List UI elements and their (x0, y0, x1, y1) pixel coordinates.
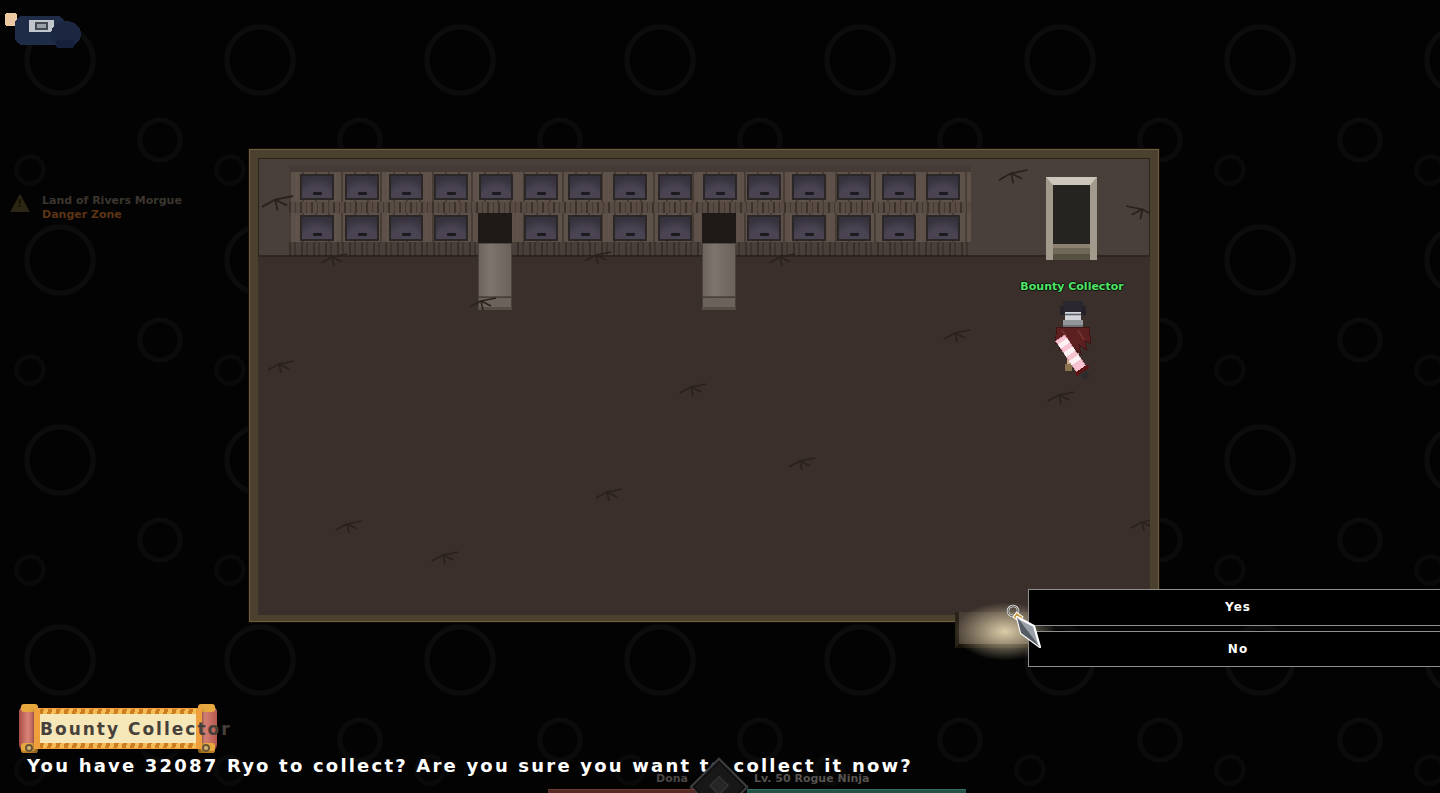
morgue-drawer (658, 215, 692, 241)
morgue-drawers-bottom-row (289, 213, 971, 242)
morgue-wall-lintel (289, 165, 971, 172)
choice-option-no[interactable]: No (1028, 631, 1440, 667)
morgue-drawer (613, 215, 647, 241)
morgue-drawers-top-row (289, 172, 971, 202)
morgue-drawer (434, 215, 468, 241)
morgue-drawer (792, 215, 826, 241)
morgue-drawer (568, 174, 602, 200)
morgue-drawer (568, 215, 602, 241)
morgue-drawer (434, 174, 468, 200)
dialogue-title-scroll: Bounty Collector (19, 706, 217, 751)
danger-warning-icon (10, 194, 30, 212)
morgue-drawer (747, 174, 781, 200)
stone-pillar (478, 213, 512, 310)
morgue-drawer (926, 174, 960, 200)
player-name: Dona (600, 772, 688, 785)
morgue-map[interactable] (250, 150, 1158, 621)
chakra-bar (747, 789, 966, 793)
health-bar (548, 789, 695, 793)
map-exit-passage[interactable] (955, 612, 1035, 648)
zone-banner: Land of Rivers Morgue Danger Zone (10, 194, 182, 222)
player-level-class: Lv. 50 Rogue Ninja (754, 772, 869, 785)
morgue-drawer (345, 215, 379, 241)
zone-danger-status: Danger Zone (42, 208, 182, 222)
morgue-shelf (289, 202, 971, 213)
morgue-drawer (524, 174, 558, 200)
choice-option-yes[interactable]: Yes (1028, 589, 1440, 626)
morgue-drawer (345, 174, 379, 200)
morgue-drawer (882, 215, 916, 241)
morgue-drawer (300, 215, 334, 241)
morgue-drawer (658, 174, 692, 200)
morgue-drawer (837, 174, 871, 200)
morgue-drawer (703, 174, 737, 200)
morgue-drawer (524, 215, 558, 241)
npc-name-label: Bounty Collector (1020, 280, 1123, 293)
zone-name: Land of Rivers Morgue (42, 194, 182, 208)
morgue-drawer (926, 215, 960, 241)
stone-pillar (702, 213, 736, 310)
morgue-drawer (479, 174, 513, 200)
morgue-drawer (300, 174, 334, 200)
dialogue-speaker-title: Bounty Collector (40, 719, 196, 739)
morgue-drawer (389, 215, 423, 241)
morgue-drawer (837, 215, 871, 241)
morgue-drawer (389, 174, 423, 200)
morgue-drawer (882, 174, 916, 200)
morgue-drawer (613, 174, 647, 200)
door-threshold (1053, 244, 1090, 260)
morgue-drawer (747, 215, 781, 241)
player-character-sprite[interactable] (0, 4, 92, 52)
morgue-door (1046, 177, 1097, 260)
bounty-collector-npc[interactable] (1054, 300, 1094, 382)
morgue-drawer (792, 174, 826, 200)
game-screen: { "zone": { "name": "Land of Rivers Morg… (0, 0, 1440, 793)
wall-drip-stains (289, 242, 971, 256)
